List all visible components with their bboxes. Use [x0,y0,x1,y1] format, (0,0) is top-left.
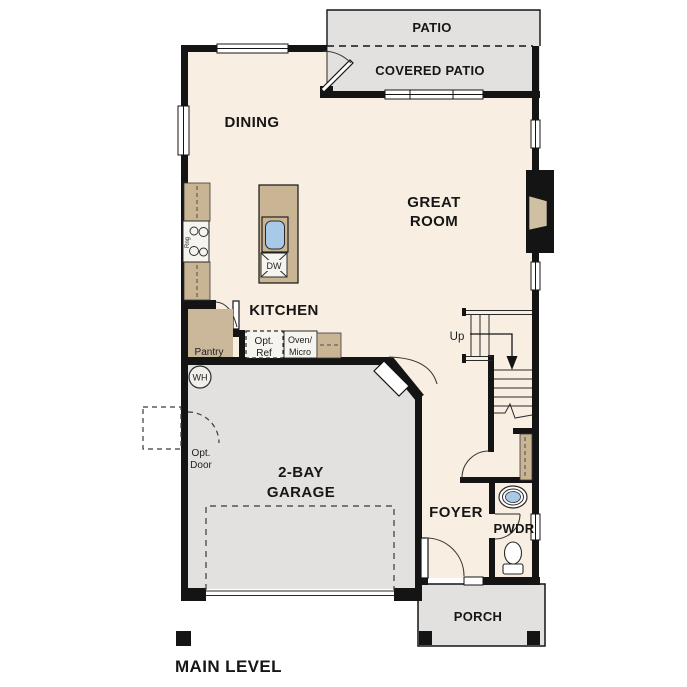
opt-door-label-2: Door [190,460,212,471]
powder-label: PWDR [494,521,535,536]
wall-powder-left-upper [489,483,495,514]
pantry: Pantry [188,309,233,358]
range: Rng [183,221,209,262]
foyer-label: FOYER [429,504,483,521]
fireplace-firebox [529,196,547,230]
pantry-label: Pantry [195,347,224,358]
window-dining-top [217,44,288,53]
window-great-room-upper [531,120,540,148]
oven-micro: Oven/ Micro [284,331,317,358]
window-dining-left [178,106,189,155]
toilet [503,542,523,574]
plan-title: MAIN LEVEL [175,657,282,676]
patio-label: PATIO [412,20,451,35]
covered-patio-label: COVERED PATIO [375,63,485,78]
wall-pantry-right [239,330,245,358]
door-garage-overhead [206,589,394,598]
wall-pantry-top [184,300,216,309]
garage-label-2: GARAGE [267,484,335,501]
wall-closet-stub [513,428,532,434]
great-room-label-1: GREAT [407,194,460,211]
window-great-room-lower [531,262,540,290]
kitchen-cabinet [317,333,341,358]
garage-label-1: 2-BAY [278,464,324,481]
water-heater: WH [189,366,211,388]
range-label: Rng [185,237,191,248]
oven-micro-label-2: Micro [289,347,311,357]
porch-post-left [419,631,432,645]
window-front-sidelite [464,577,483,585]
floor-plan-drawing: Up Rng DW [0,0,687,687]
porch-label: PORCH [454,609,502,624]
dishwasher-label: DW [267,261,282,271]
dining-label: DINING [225,114,280,131]
dishwasher: DW [261,253,287,277]
powder-sink [499,486,527,508]
opt-door-label-1: Opt. [192,448,211,459]
water-heater-label: WH [193,373,208,383]
wall-stair-side [488,355,494,452]
fireplace [526,170,554,253]
wall-garage-door-stub-right [394,588,422,601]
great-room-label-2: ROOM [410,213,458,230]
porch-post-right [527,631,540,645]
wall-powder-left-lower [489,538,495,579]
oven-micro-label-1: Oven/ [288,335,313,345]
floor-plan-page: Up Rng DW [0,0,687,687]
kitchen-sink [266,221,285,249]
kitchen-label: KITCHEN [249,302,318,319]
stairs-up-label: Up [450,331,465,343]
hall-closet [520,434,532,480]
window-covered-patio [385,90,483,99]
plan-marker-square [176,631,191,646]
opt-ref-label-2: Ref [256,348,272,359]
optional-refrigerator: Opt. Ref [246,331,283,359]
kitchen-island: DW [259,185,298,283]
wall-garage-door-stub-left [181,588,206,601]
opt-ref-label-1: Opt. [255,336,274,347]
closet-shelf [520,434,532,480]
